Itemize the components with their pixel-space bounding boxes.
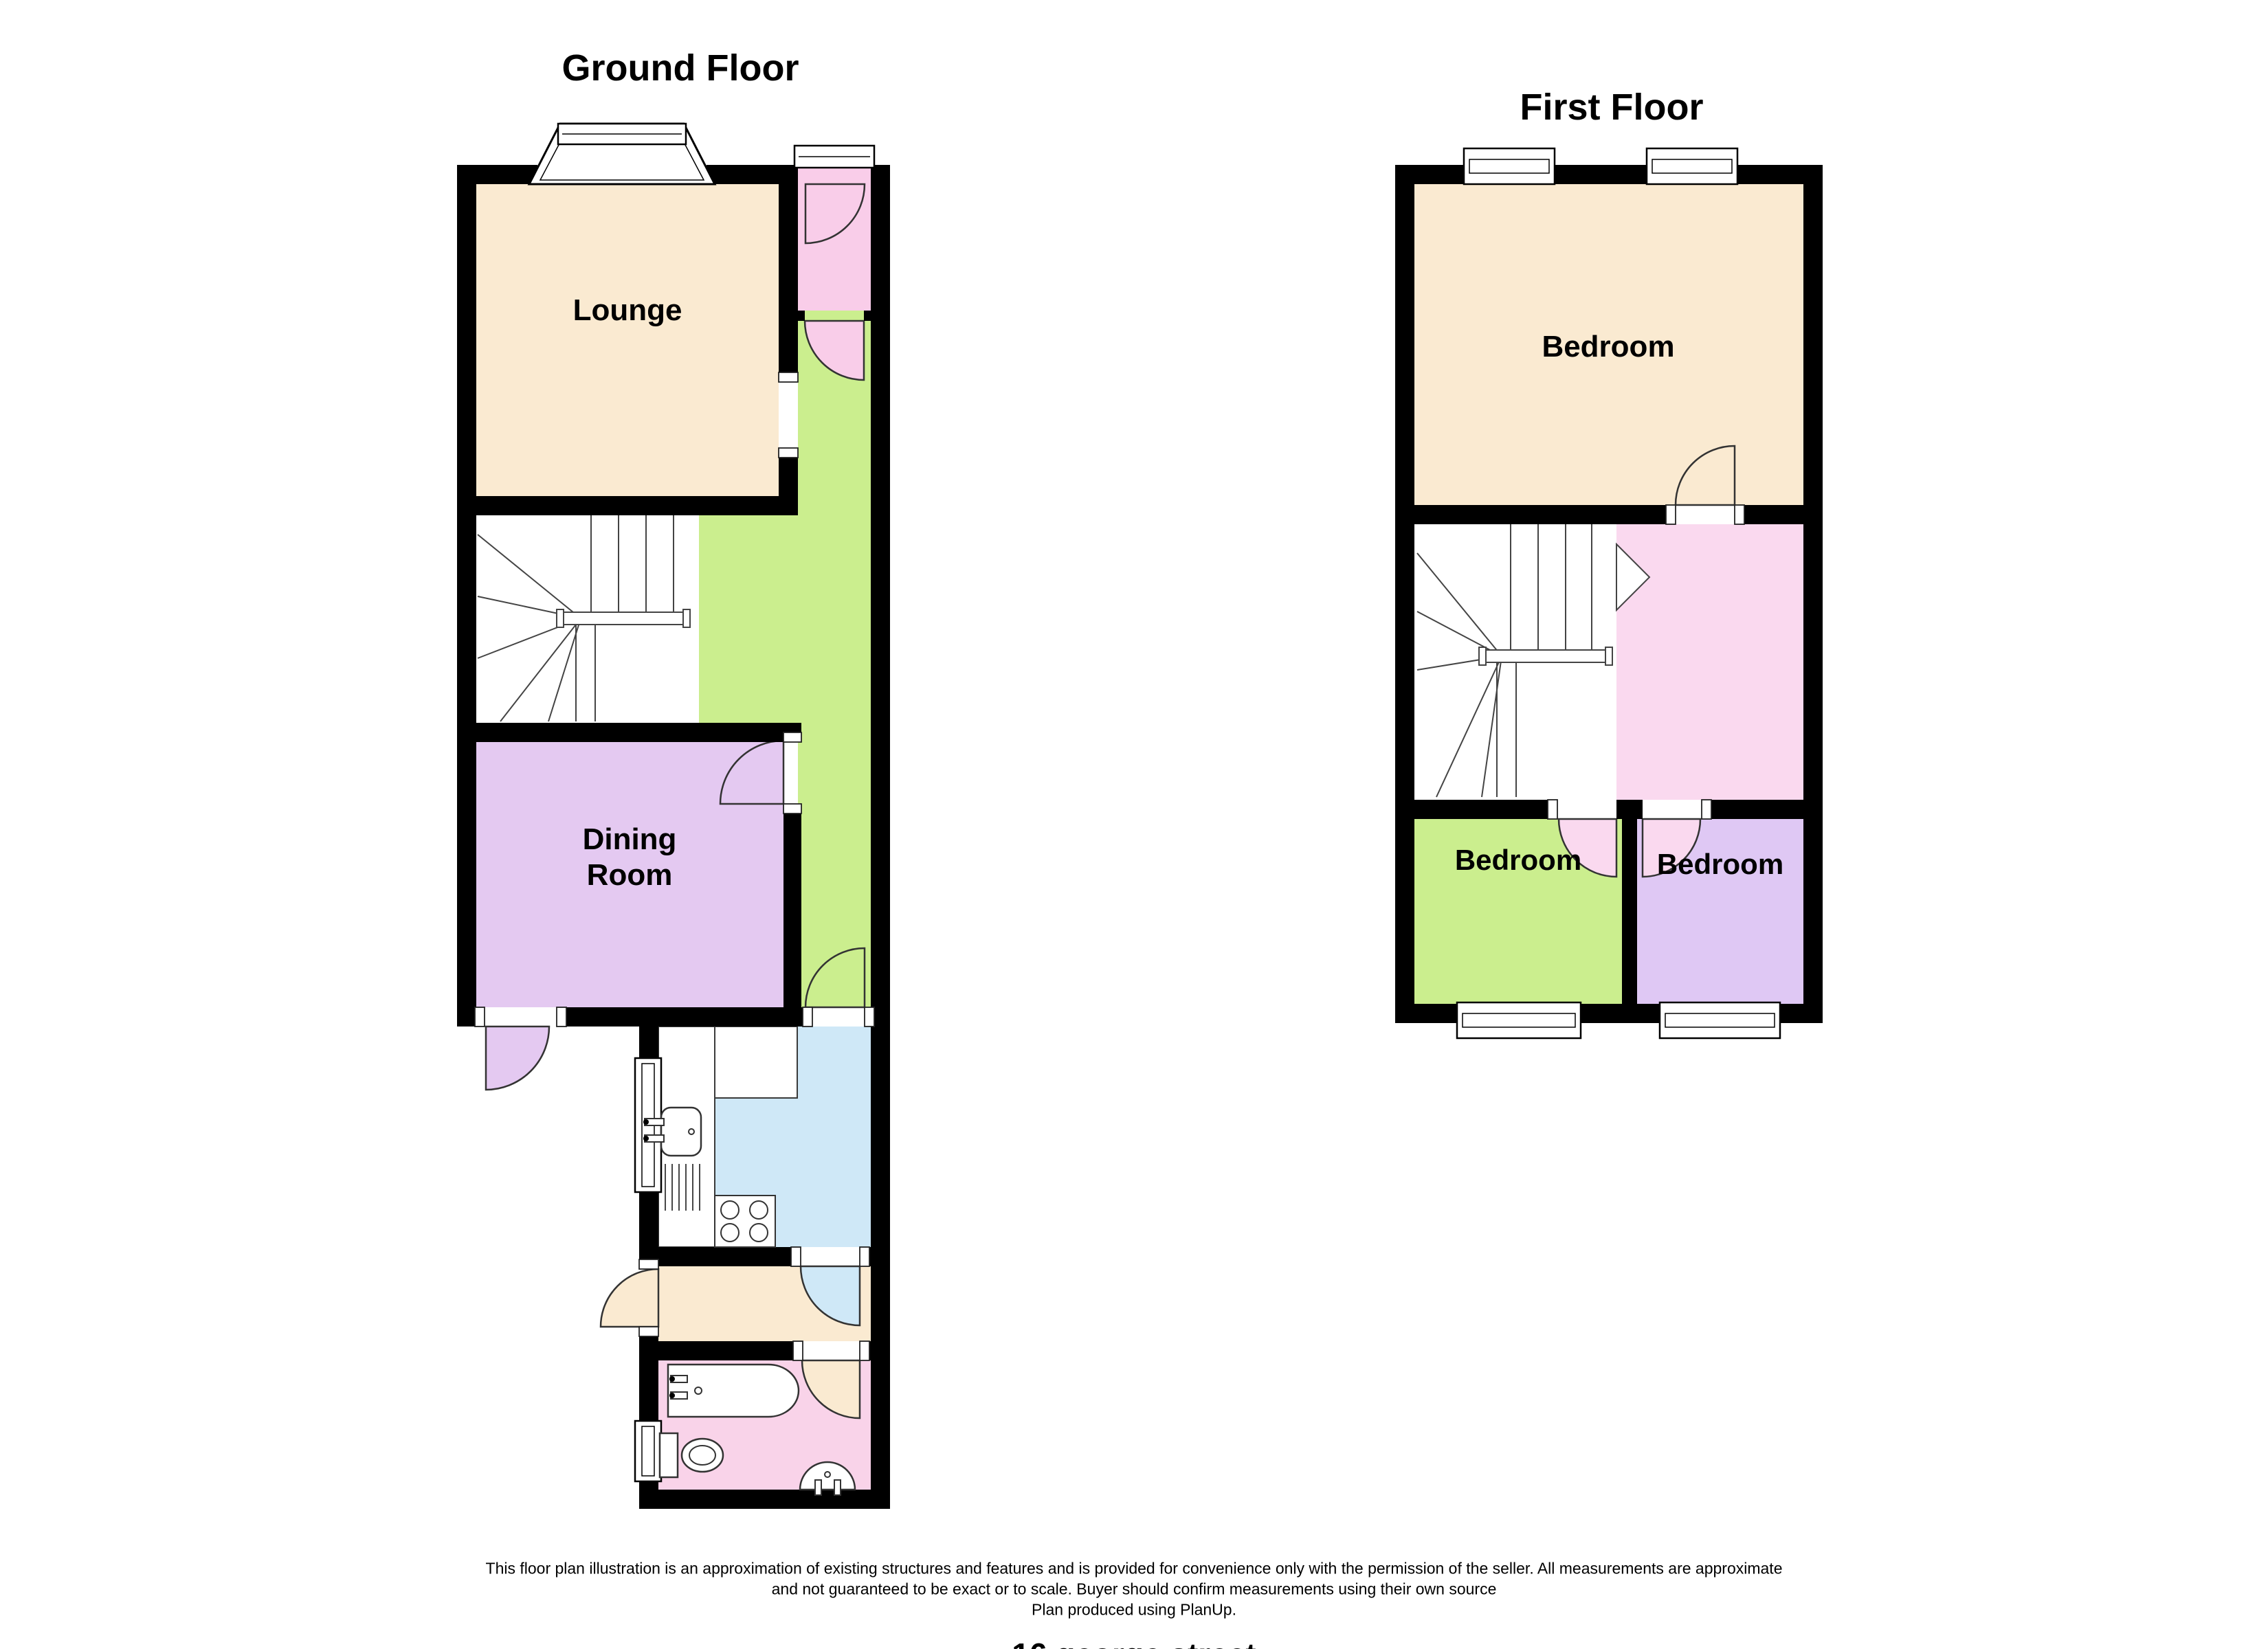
jamb xyxy=(865,1007,874,1027)
kitchen-sink xyxy=(661,1108,701,1156)
wall xyxy=(779,165,798,382)
newel-post xyxy=(1479,647,1486,665)
lounge-label: Lounge xyxy=(573,293,682,328)
wall xyxy=(1622,819,1637,1004)
bedroom-green-window xyxy=(1457,1002,1581,1038)
newel-post xyxy=(683,609,690,627)
bedroom-purple-window xyxy=(1660,1002,1780,1038)
toilet-bowl xyxy=(682,1439,723,1472)
toilet-cistern xyxy=(660,1433,678,1477)
jamb xyxy=(860,1341,869,1360)
wall xyxy=(1616,800,1643,819)
wall xyxy=(557,1007,812,1027)
wall xyxy=(639,1341,803,1360)
jamb xyxy=(860,1247,869,1266)
floorplan-drawing xyxy=(0,0,2268,1649)
wall xyxy=(1735,505,1823,524)
bedroom-large-label: Bedroom xyxy=(1542,329,1674,365)
newel-post xyxy=(557,609,564,627)
jamb xyxy=(1735,505,1744,524)
jamb xyxy=(783,804,801,814)
tap-icon xyxy=(815,1480,821,1495)
wall xyxy=(1395,165,1414,1023)
wall xyxy=(476,165,537,184)
bedroom-green-label: Bedroom xyxy=(1455,843,1581,877)
dining-rear-door-arc xyxy=(486,1027,549,1090)
jamb xyxy=(557,1007,566,1027)
address-title: 16 george street xyxy=(1012,1636,1256,1649)
bedroom-purple-label: Bedroom xyxy=(1657,847,1783,882)
tap-knob xyxy=(669,1376,675,1382)
disclaimer-line-3: Plan produced using PlanUp. xyxy=(1032,1601,1236,1619)
wall xyxy=(871,165,890,1509)
tap-knob xyxy=(643,1119,649,1125)
jamb xyxy=(793,1341,803,1360)
tap-knob xyxy=(643,1136,649,1141)
wall xyxy=(1395,505,1676,524)
first-floor-title: First Floor xyxy=(1520,86,1704,130)
jamb xyxy=(779,448,798,458)
bathroom-window xyxy=(635,1421,661,1481)
wall xyxy=(457,496,798,515)
bedroom-large-window-1 xyxy=(1464,148,1555,184)
wall xyxy=(1803,165,1823,1023)
jamb xyxy=(639,1259,658,1269)
wall xyxy=(639,1247,801,1266)
handrail xyxy=(562,612,685,625)
wall xyxy=(457,165,476,1027)
wall xyxy=(864,311,871,321)
bathtub xyxy=(668,1365,799,1417)
wall xyxy=(1395,800,1557,819)
tap-icon xyxy=(834,1480,841,1495)
disclaimer-line-2: and not guaranteed to be exact or to sca… xyxy=(772,1580,1497,1599)
jamb xyxy=(783,732,801,742)
wall xyxy=(783,804,801,1007)
jamb xyxy=(779,372,798,382)
floorplan-page: Ground Floor First Floor Lounge Dining R… xyxy=(0,0,2268,1649)
jamb xyxy=(803,1007,812,1027)
jamb xyxy=(1666,505,1676,524)
wall xyxy=(1702,800,1823,819)
jamb xyxy=(1548,800,1557,819)
handrail xyxy=(1485,650,1605,662)
wall xyxy=(707,165,779,184)
tap-knob xyxy=(669,1393,675,1398)
bedroom-large-window-2 xyxy=(1647,148,1737,184)
ground-floor-title: Ground Floor xyxy=(562,47,799,91)
wall xyxy=(1395,165,1823,184)
wall xyxy=(457,723,801,742)
lounge-floor xyxy=(476,184,779,496)
dining-room-label: Dining Room xyxy=(561,822,698,893)
rear-exit-door-arc xyxy=(601,1269,658,1327)
hallway-floor-strip xyxy=(798,311,871,1007)
jamb xyxy=(1702,800,1711,819)
wall xyxy=(798,311,805,321)
jamb xyxy=(475,1007,485,1027)
disclaimer-line-1: This floor plan illustration is an appro… xyxy=(486,1560,1783,1578)
hallway-floor-stairside xyxy=(699,515,798,723)
jamb xyxy=(639,1327,658,1336)
bay-window xyxy=(529,124,715,184)
newel-post xyxy=(1605,647,1612,665)
wall xyxy=(639,1490,890,1509)
jamb xyxy=(791,1247,801,1266)
front-door-window xyxy=(794,146,874,168)
